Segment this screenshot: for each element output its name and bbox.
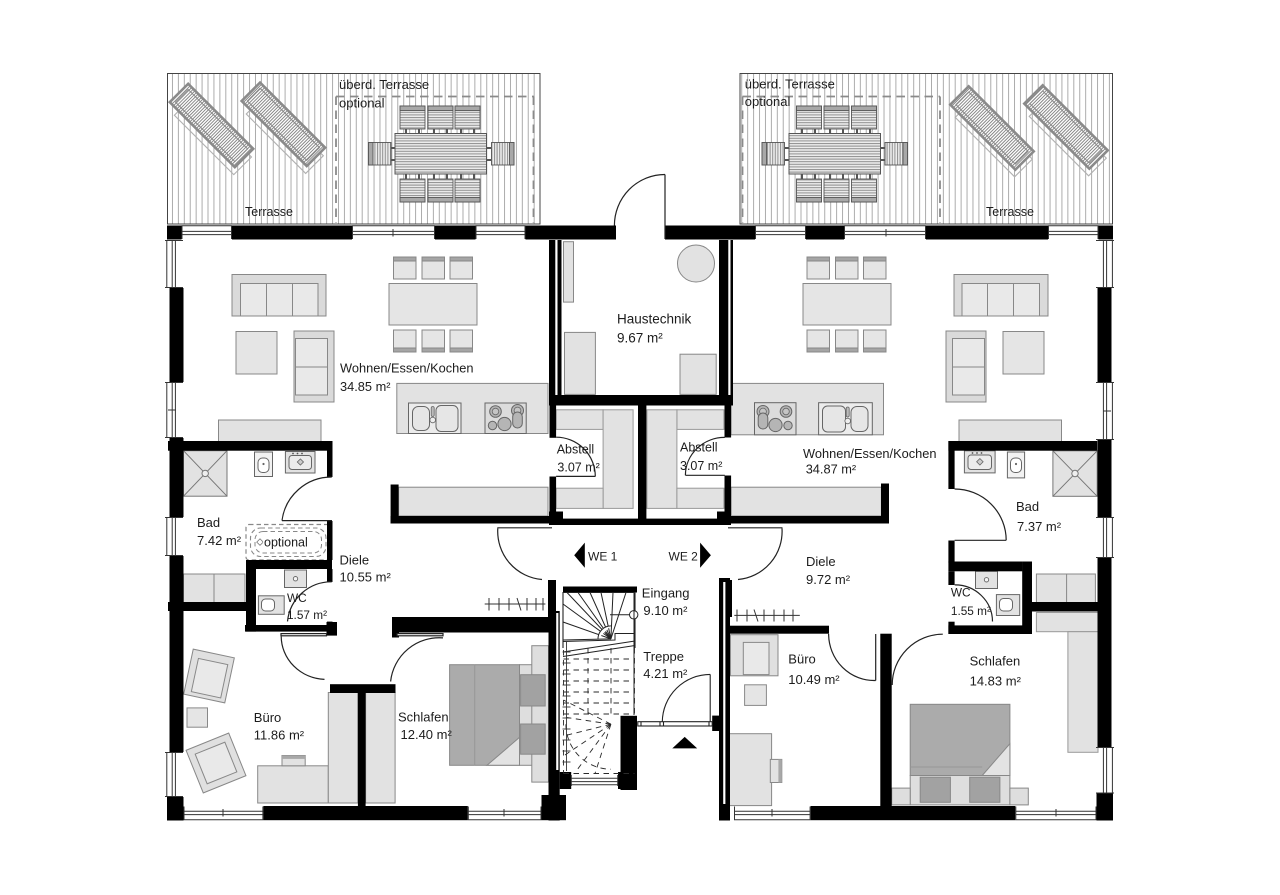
svg-text:Diele: Diele xyxy=(806,554,836,569)
svg-text:optional: optional xyxy=(745,94,791,109)
svg-text:optional: optional xyxy=(264,536,308,550)
svg-text:3.07 m²: 3.07 m² xyxy=(680,459,722,473)
svg-text:WE 2: WE 2 xyxy=(669,550,699,564)
svg-text:11.86 m²: 11.86 m² xyxy=(254,728,305,743)
svg-text:Wohnen/Essen/Kochen: Wohnen/Essen/Kochen xyxy=(803,446,937,461)
svg-text:10.49 m²: 10.49 m² xyxy=(788,672,840,687)
svg-text:7.37 m²: 7.37 m² xyxy=(1017,519,1062,534)
svg-text:14.83 m²: 14.83 m² xyxy=(970,674,1022,689)
svg-text:1.55 m²: 1.55 m² xyxy=(951,604,991,618)
svg-text:34.87 m²: 34.87 m² xyxy=(806,462,857,477)
svg-text:Abstell: Abstell xyxy=(557,443,595,457)
svg-text:Schlafen: Schlafen xyxy=(970,654,1021,669)
svg-text:optional: optional xyxy=(339,96,385,111)
svg-text:3.07 m²: 3.07 m² xyxy=(557,461,599,475)
svg-text:1.57 m²: 1.57 m² xyxy=(287,608,327,622)
svg-text:9.67 m²: 9.67 m² xyxy=(617,331,663,346)
svg-text:34.85 m²: 34.85 m² xyxy=(340,379,391,394)
svg-text:12.40 m²: 12.40 m² xyxy=(401,727,453,742)
svg-text:Bad: Bad xyxy=(1016,499,1039,514)
svg-text:WC: WC xyxy=(287,591,307,605)
svg-text:Diele: Diele xyxy=(340,553,370,568)
svg-text:9.10 m²: 9.10 m² xyxy=(643,603,688,618)
svg-text:überd. Terrasse: überd. Terrasse xyxy=(745,77,835,92)
svg-text:Wohnen/Essen/Kochen: Wohnen/Essen/Kochen xyxy=(340,361,474,376)
svg-text:10.55 m²: 10.55 m² xyxy=(340,570,392,585)
svg-text:WC: WC xyxy=(951,586,971,600)
svg-text:7.42 m²: 7.42 m² xyxy=(197,533,242,548)
svg-text:Büro: Büro xyxy=(788,652,815,667)
svg-text:überd. Terrasse: überd. Terrasse xyxy=(339,77,429,92)
svg-text:WE 1: WE 1 xyxy=(588,550,618,564)
svg-text:Terrasse: Terrasse xyxy=(245,205,293,219)
svg-text:Büro: Büro xyxy=(254,710,281,725)
svg-text:Schlafen: Schlafen xyxy=(398,710,449,725)
svg-text:4.21 m²: 4.21 m² xyxy=(643,666,688,681)
svg-text:Eingang: Eingang xyxy=(642,586,690,601)
svg-text:Abstell: Abstell xyxy=(680,441,718,455)
svg-text:Bad: Bad xyxy=(197,515,220,530)
svg-text:Haustechnik: Haustechnik xyxy=(617,312,692,327)
svg-text:Treppe: Treppe xyxy=(643,649,684,664)
svg-text:9.72 m²: 9.72 m² xyxy=(806,572,851,587)
svg-text:Terrasse: Terrasse xyxy=(986,205,1034,219)
